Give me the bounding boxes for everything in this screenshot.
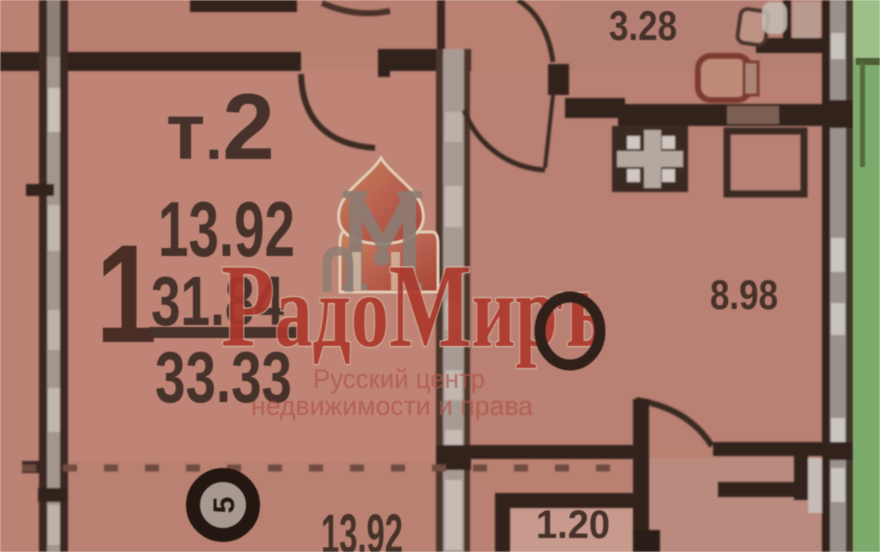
svg-text:8.98: 8.98: [710, 271, 778, 318]
svg-text:1: 1: [96, 215, 157, 372]
svg-text:1.20: 1.20: [536, 503, 610, 547]
svg-text:5: 5: [208, 497, 241, 514]
svg-text:Русский центр: Русский центр: [313, 364, 485, 394]
svg-text:3.28: 3.28: [609, 2, 677, 49]
svg-text:13.92: 13.92: [321, 502, 403, 552]
svg-text:недвижимости и права: недвижимости и права: [251, 391, 534, 421]
